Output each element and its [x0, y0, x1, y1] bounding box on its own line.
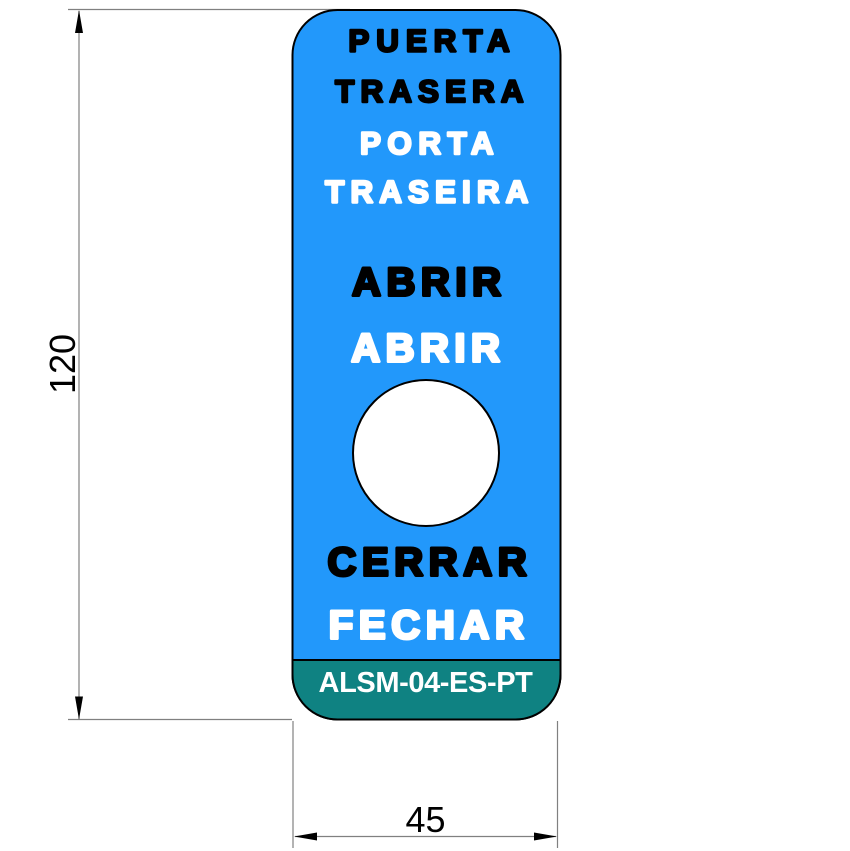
svg-text:ALSM-04-ES-PT: ALSM-04-ES-PT	[319, 667, 534, 699]
svg-text:TRASERA: TRASERA	[335, 74, 529, 109]
svg-text:ABRIR: ABRIR	[351, 327, 505, 371]
svg-text:PUERTA: PUERTA	[348, 23, 516, 58]
svg-text:45: 45	[405, 799, 445, 840]
svg-text:PORTA: PORTA	[360, 126, 500, 161]
svg-text:FECHAR: FECHAR	[329, 604, 530, 648]
svg-text:ABRIR: ABRIR	[352, 261, 507, 305]
svg-text:CERRAR: CERRAR	[328, 541, 533, 585]
svg-text:TRASEIRA: TRASEIRA	[325, 175, 534, 210]
svg-text:120: 120	[42, 334, 83, 394]
